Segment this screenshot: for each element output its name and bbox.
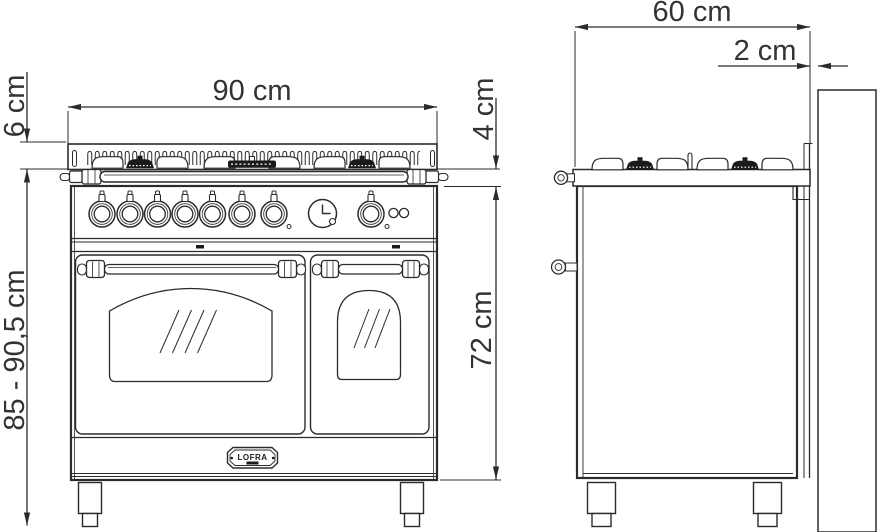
dim-label-worktop-edge: 4 cm: [468, 78, 500, 141]
side-view: [552, 90, 877, 532]
badge-rivet: [231, 457, 234, 460]
cooktop: [68, 144, 437, 170]
control-knob: [261, 191, 287, 227]
dim-label-body-height: 72 cm: [466, 291, 498, 370]
control-knob: [358, 191, 384, 227]
dim-label-hob-edge: 6 cm: [0, 75, 31, 138]
dim-worktop-edge: 4 cm: [468, 78, 500, 169]
glass-reflection: [354, 309, 390, 348]
brand-badge: LOFRA: [228, 448, 278, 469]
oven-door-left: [76, 255, 306, 434]
range-cooker-dimension-diagram: LOFRA: [0, 0, 880, 532]
dim-depth: 60 cm: [575, 0, 810, 28]
side-door-handle: [552, 260, 578, 274]
brand-badge-label: LOFRA: [237, 453, 267, 462]
burner-cap: [626, 157, 654, 170]
ignition-dot: [385, 225, 389, 229]
control-panel: [71, 191, 437, 252]
control-knob: [172, 191, 198, 227]
dimension-annotations: 90 cm 6 cm 85 - 90,5 cm 4 cm 72 cm 60 cm…: [0, 0, 848, 526]
glass-reflection: [160, 310, 217, 353]
burner-cap: [731, 157, 759, 170]
hob-edge-trim: [431, 151, 435, 167]
hob-edge-trim: [73, 151, 77, 167]
towel-rail: [60, 170, 448, 185]
igniter-pin: [688, 153, 692, 170]
indicator-light: [399, 208, 408, 217]
rail-end-knob: [554, 171, 574, 184]
side-body: [577, 186, 797, 478]
badge-submark: [247, 462, 259, 465]
door-handle: [78, 261, 306, 278]
wall-section: [818, 90, 876, 532]
control-knob: [145, 191, 171, 227]
dim-label-depth: 60 cm: [653, 0, 732, 28]
foot: [79, 483, 102, 527]
plinth: LOFRA: [71, 438, 437, 477]
control-knob: [89, 191, 115, 227]
dim-overall-height: 85 - 90,5 cm: [0, 170, 31, 526]
oven-body: [71, 186, 437, 480]
hinge-mark: [392, 245, 400, 249]
dim-label-wall-gap: 2 cm: [734, 35, 797, 67]
front-view: LOFRA: [60, 144, 448, 527]
door-window: [110, 289, 273, 382]
technical-drawing-page: LOFRA: [0, 0, 880, 532]
foot: [588, 483, 616, 527]
side-cooktop: [554, 153, 810, 186]
ignition-dot: [287, 225, 291, 229]
door-window: [338, 291, 401, 380]
door-handle: [313, 261, 429, 278]
indicator-light: [389, 208, 398, 217]
clock-timer: [309, 200, 337, 228]
dim-front-width: 90 cm: [68, 75, 437, 107]
control-knob: [117, 191, 143, 227]
badge-rivet: [272, 457, 275, 460]
control-knob: [200, 191, 226, 227]
dim-hob-edge-height: 6 cm: [0, 72, 31, 142]
dim-wall-gap: 2 cm: [718, 35, 848, 67]
oven-door-right: [311, 255, 430, 434]
foot: [754, 483, 782, 527]
dim-label-overall-height: 85 - 90,5 cm: [0, 269, 31, 430]
dim-body-height: 72 cm: [466, 187, 498, 480]
hinge-mark: [196, 245, 204, 249]
foot: [401, 483, 424, 527]
dim-label-front-width: 90 cm: [213, 75, 292, 107]
control-knob: [229, 191, 255, 227]
